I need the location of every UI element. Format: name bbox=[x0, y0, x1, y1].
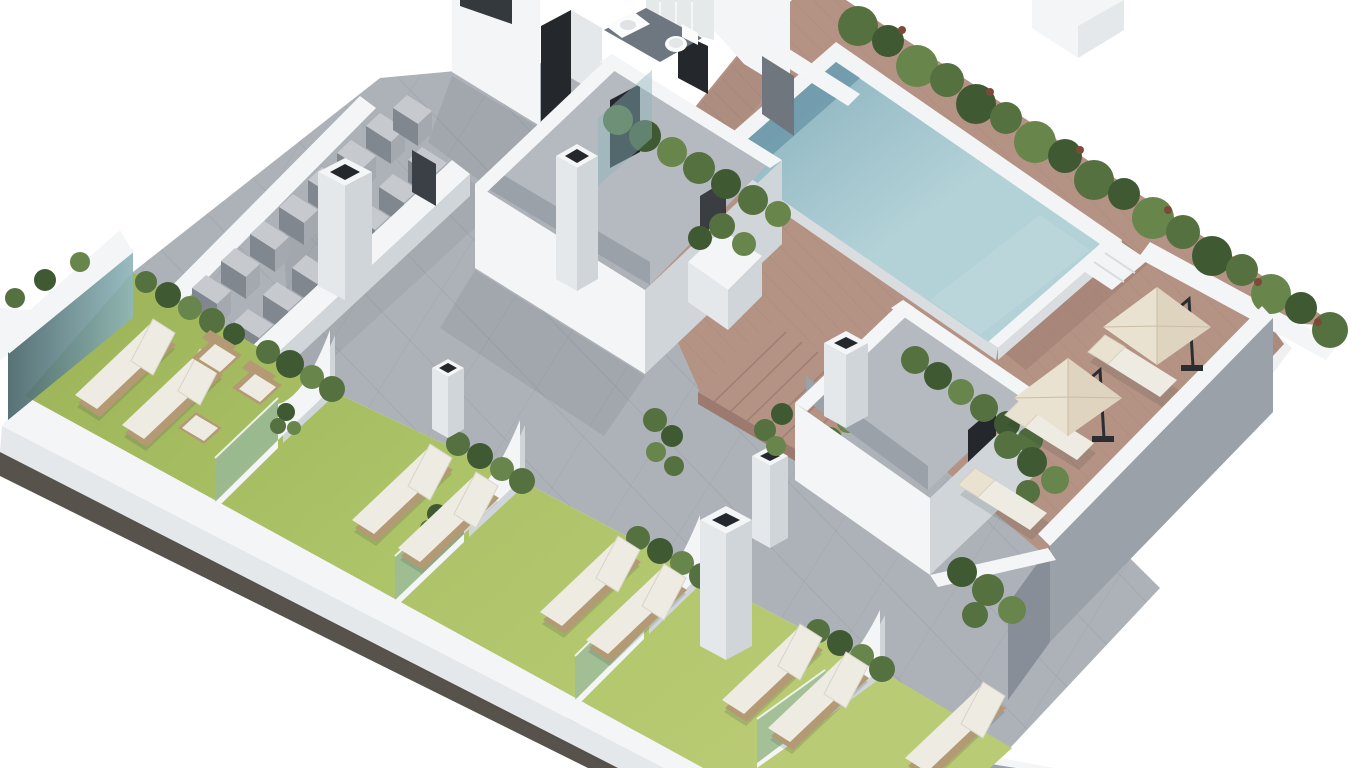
chimney-ac-zone: Ventilation chimney bbox=[318, 158, 372, 300]
chimney-terrace-west: Ventilation chimney bbox=[432, 359, 464, 438]
rooftop-render: Rooftop terrace 3D render bbox=[0, 0, 1366, 768]
render-canvas: Rooftop terrace 3D render bbox=[0, 0, 1366, 768]
chimney-terrace-south: Ventilation chimney bbox=[700, 506, 752, 660]
chimney-pillar-b: Ventilation chimney bbox=[824, 331, 868, 428]
chimney-pillar-a: Ventilation chimney bbox=[752, 446, 788, 548]
